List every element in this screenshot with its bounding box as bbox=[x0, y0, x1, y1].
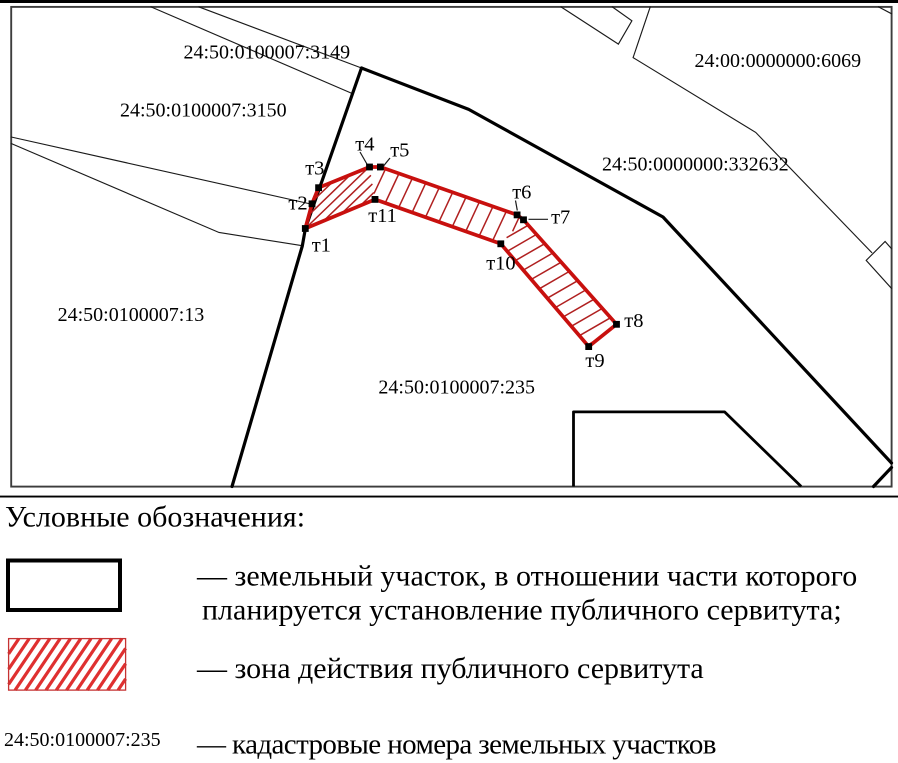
svg-text:т2: т2 bbox=[288, 193, 307, 215]
svg-text:т8: т8 bbox=[624, 310, 643, 332]
svg-text:т11: т11 bbox=[368, 205, 397, 227]
svg-text:24:00:0000000:6069: 24:00:0000000:6069 bbox=[695, 50, 862, 72]
svg-text:— кадастровые номера земельных: — кадастровые номера земельных участков bbox=[196, 729, 716, 761]
svg-text:24:50:0100007:3149: 24:50:0100007:3149 bbox=[184, 42, 351, 64]
svg-text:т5: т5 bbox=[390, 140, 409, 162]
svg-text:т4: т4 bbox=[355, 133, 374, 155]
svg-text:т6: т6 bbox=[512, 181, 531, 203]
svg-text:т10: т10 bbox=[486, 253, 515, 275]
svg-text:24:50:0100007:235: 24:50:0100007:235 bbox=[4, 729, 161, 751]
svg-text:т7: т7 bbox=[551, 207, 570, 229]
svg-text:24:50:0100007:3150: 24:50:0100007:3150 bbox=[120, 100, 287, 122]
svg-text:24:50:0100007:235: 24:50:0100007:235 bbox=[378, 377, 535, 399]
svg-text:планируется установление публи: планируется установление публичного серв… bbox=[202, 594, 842, 627]
svg-text:Условные обозначения:: Условные обозначения: bbox=[5, 501, 305, 534]
svg-text:т1: т1 bbox=[312, 234, 331, 256]
svg-text:т3: т3 bbox=[305, 157, 324, 179]
svg-text:24:50:0100007:13: 24:50:0100007:13 bbox=[58, 304, 205, 326]
svg-text:— зона действия публичного сер: — зона действия публичного сервитута bbox=[196, 652, 704, 685]
svg-text:24:50:0000000:332632: 24:50:0000000:332632 bbox=[602, 154, 789, 176]
svg-text:т9: т9 bbox=[585, 350, 604, 372]
svg-text:— земельный участок, в отношен: — земельный участок, в отношении части к… bbox=[196, 560, 857, 593]
